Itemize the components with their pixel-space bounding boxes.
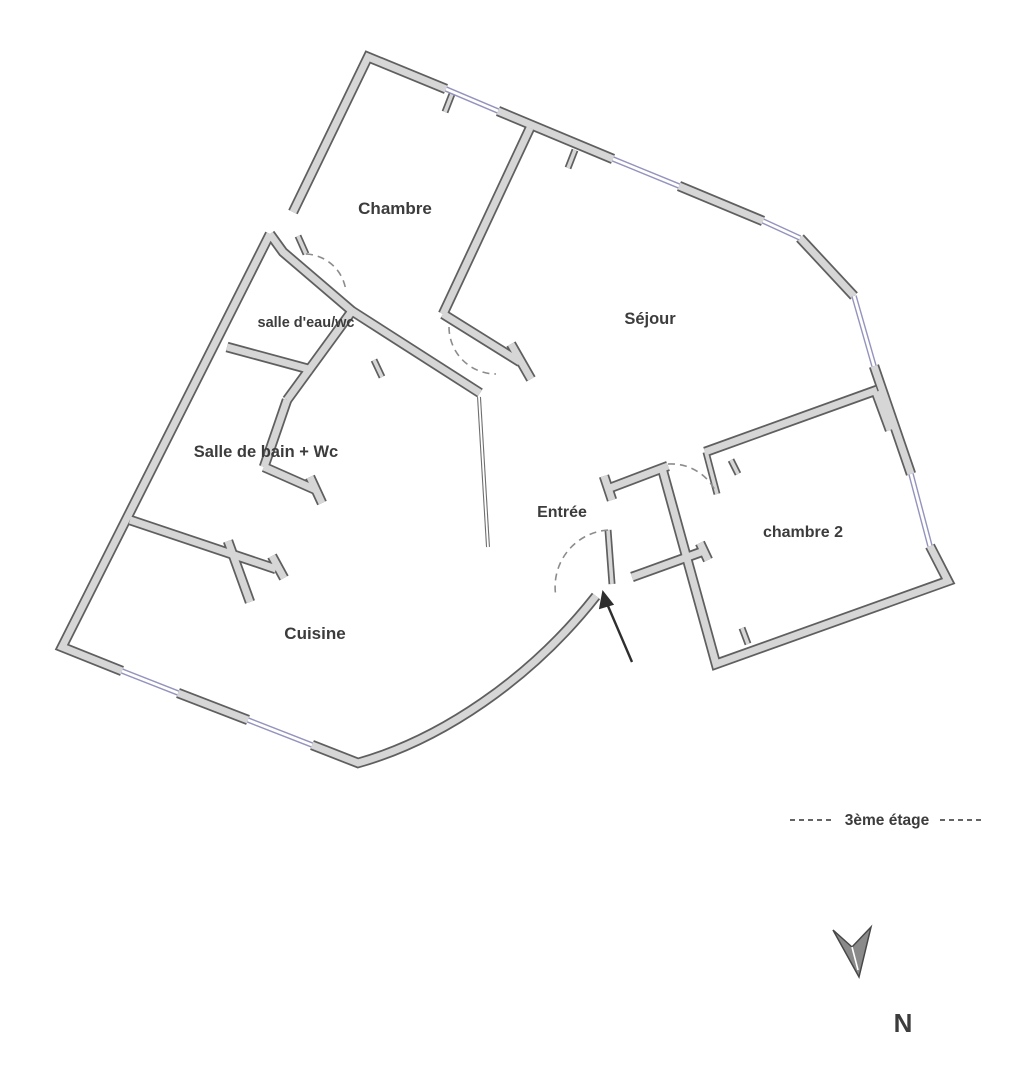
room-label-entree: Entrée bbox=[537, 504, 587, 521]
floor-legend: 3ème étage bbox=[790, 812, 984, 829]
thin-partition bbox=[479, 397, 488, 547]
door-arc-entrance bbox=[555, 530, 608, 597]
door-arcs bbox=[306, 254, 716, 597]
floorplan-page: Chambre Séjour salle d'eau/wc Salle de b… bbox=[0, 0, 1011, 1080]
room-label-sejour: Séjour bbox=[624, 310, 676, 328]
compass-north-icon: N bbox=[833, 927, 912, 1038]
room-label-cuisine: Cuisine bbox=[284, 624, 345, 643]
room-label-salle-deau-wc: salle d'eau/wc bbox=[258, 315, 355, 331]
entrance-arrow-icon bbox=[599, 590, 632, 662]
floor-label: 3ème étage bbox=[845, 812, 930, 829]
room-label-chambre: Chambre bbox=[358, 199, 432, 218]
room-label-chambre-2: chambre 2 bbox=[763, 524, 843, 541]
compass-north-label: N bbox=[894, 1008, 913, 1038]
room-label-salle-de-bain-wc: Salle de bain + Wc bbox=[194, 443, 338, 461]
floor-plan: Chambre Séjour salle d'eau/wc Salle de b… bbox=[0, 0, 1011, 1080]
walls-fill-layer bbox=[62, 57, 948, 763]
